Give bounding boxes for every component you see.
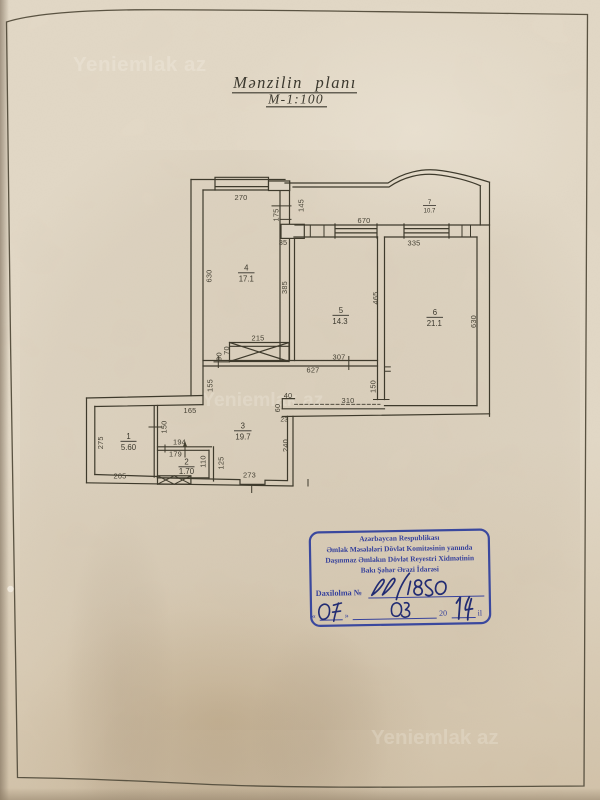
svg-text:240: 240 [281,439,290,452]
svg-text:14.3: 14.3 [332,317,347,326]
svg-text:Daxilolma №: Daxilolma № [316,588,362,598]
svg-text:630: 630 [469,315,478,328]
svg-text:165: 165 [184,406,197,415]
svg-text:5.60: 5.60 [121,443,137,452]
svg-text:17.1: 17.1 [239,275,254,284]
svg-text:150: 150 [368,380,377,393]
svg-text:40: 40 [284,391,293,400]
svg-text:125: 125 [217,457,226,470]
svg-text:5: 5 [339,306,344,315]
svg-text:4: 4 [244,264,249,273]
svg-text:Azərbaycan Respublikası: Azərbaycan Respublikası [359,533,439,543]
svg-text:10.7: 10.7 [424,209,436,215]
svg-text:275: 275 [96,436,105,449]
svg-text:1: 1 [126,432,130,441]
svg-text:M-1:100: M-1:100 [267,92,324,107]
svg-text:60: 60 [273,404,282,413]
svg-text:273: 273 [243,471,256,480]
svg-text:670: 670 [358,216,371,225]
svg-text:35: 35 [279,238,288,247]
svg-text:194: 194 [173,438,186,447]
svg-text:20: 20 [439,609,447,618]
svg-text:1.70: 1.70 [179,467,195,476]
svg-text:6: 6 [433,308,437,317]
svg-text:270: 270 [235,193,248,202]
svg-text:205: 205 [114,472,127,481]
svg-text:Mənzilin planı: Mənzilin planı [232,73,357,92]
svg-text:23: 23 [280,417,288,424]
svg-text:Bakı Şəhər Ərazi İdarəsi: Bakı Şəhər Ərazi İdarəsi [361,563,439,574]
svg-text:335: 335 [408,239,421,248]
svg-text:310: 310 [342,396,355,405]
svg-text:«: « [312,611,316,620]
svg-text:Yeniemlak az: Yeniemlak az [371,726,499,749]
svg-text:155: 155 [206,379,215,392]
svg-text:21.1: 21.1 [427,319,442,328]
svg-text:»: » [345,611,349,620]
svg-text:307: 307 [333,353,346,362]
svg-text:179: 179 [169,450,182,459]
svg-text:215: 215 [252,334,265,343]
svg-text:70: 70 [222,346,231,355]
svg-text:175: 175 [271,209,280,222]
svg-text:630: 630 [204,270,213,283]
svg-text:385: 385 [280,281,289,294]
svg-text:3: 3 [241,422,245,431]
svg-text:627: 627 [307,366,320,375]
svg-text:110: 110 [198,455,207,467]
svg-text:145: 145 [297,199,306,212]
svg-text:Yeniemlak az: Yeniemlak az [202,389,324,411]
svg-text:465: 465 [371,292,380,305]
svg-text:Yeniemlak az: Yeniemlak az [73,53,207,76]
svg-text:150: 150 [159,421,168,434]
svg-text:19.7: 19.7 [235,433,250,442]
svg-text:2: 2 [184,458,188,467]
